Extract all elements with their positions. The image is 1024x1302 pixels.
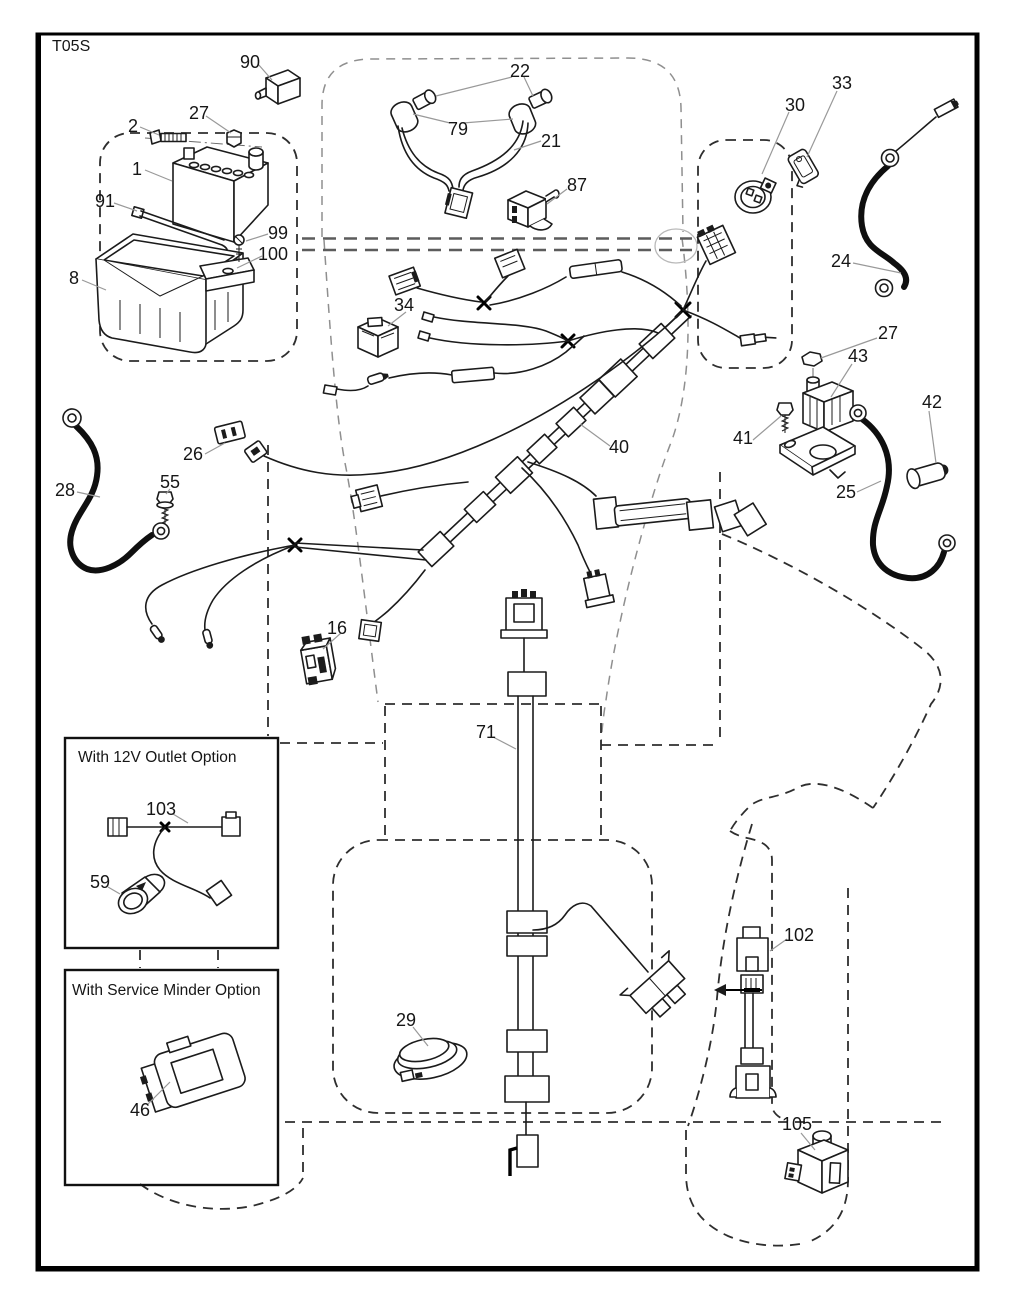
harness-connector-blocks bbox=[418, 323, 675, 566]
part-label-25: 25 bbox=[836, 482, 856, 502]
service-minder-inset: With Service Minder Option bbox=[65, 970, 278, 1185]
solenoid-43 bbox=[780, 352, 855, 478]
power-outlet-59 bbox=[114, 870, 168, 918]
steering-wheel-sketch bbox=[655, 229, 697, 263]
part-label-27-solenoid: 27 bbox=[878, 323, 898, 343]
part-label-99: 99 bbox=[268, 223, 288, 243]
part-label-34: 34 bbox=[394, 295, 414, 315]
small-plug-b bbox=[580, 567, 615, 607]
part-label-2: 2 bbox=[128, 116, 138, 136]
harness-102 bbox=[714, 927, 776, 1098]
part-label-16: 16 bbox=[327, 618, 347, 638]
part-label-24: 24 bbox=[831, 251, 851, 271]
ground-cable-28 bbox=[59, 405, 169, 570]
part-label-87: 87 bbox=[567, 175, 587, 195]
part-label-1: 1 bbox=[132, 159, 142, 179]
part-label-79: 79 bbox=[448, 119, 468, 139]
part-label-42: 42 bbox=[922, 392, 942, 412]
part-label-43: 43 bbox=[848, 346, 868, 366]
ignition-connector bbox=[695, 221, 735, 265]
part-label-30: 30 bbox=[785, 95, 805, 115]
part-label-103: 103 bbox=[146, 799, 176, 819]
part-label-28: 28 bbox=[55, 480, 75, 500]
inline-fuse-holder bbox=[569, 259, 622, 278]
part-label-29: 29 bbox=[396, 1010, 416, 1030]
chassis-outline bbox=[140, 445, 944, 1246]
battery bbox=[145, 138, 268, 242]
terminal-boot-42 bbox=[905, 459, 951, 490]
fuel-tank-outline bbox=[333, 840, 652, 1113]
fuel-cap-29 bbox=[390, 1031, 471, 1085]
switch-16 bbox=[298, 632, 337, 686]
battery-nut bbox=[227, 130, 241, 147]
twin-terminal-wires bbox=[418, 312, 658, 345]
part-label-105: 105 bbox=[782, 1114, 812, 1134]
parts-diagram-page: T05S bbox=[0, 0, 1024, 1302]
part-label-71: 71 bbox=[476, 722, 496, 742]
part-label-22: 22 bbox=[510, 61, 530, 81]
branch-connector-a bbox=[389, 267, 421, 295]
part-label-21: 21 bbox=[541, 131, 561, 151]
fuse-link-branch bbox=[528, 462, 766, 536]
part-label-41: 41 bbox=[733, 428, 753, 448]
harness-tail-plug bbox=[359, 620, 381, 642]
outlet-inset-title: With 12V Outlet Option bbox=[78, 749, 237, 766]
service-inset-title: With Service Minder Option bbox=[72, 982, 261, 999]
part-label-55: 55 bbox=[160, 472, 180, 492]
small-plug-a bbox=[350, 485, 382, 513]
diagram-code: T05S bbox=[52, 38, 90, 55]
screw-55 bbox=[157, 492, 173, 524]
ignition-switch bbox=[735, 178, 776, 213]
part-label-102: 102 bbox=[784, 925, 814, 945]
part-label-91: 91 bbox=[95, 191, 115, 211]
part-label-40: 40 bbox=[609, 437, 629, 457]
part-label-8: 8 bbox=[69, 268, 79, 288]
clip-connector bbox=[620, 951, 698, 1027]
hour-meter-105 bbox=[785, 1131, 848, 1193]
bullet-terminal-wires bbox=[146, 543, 426, 649]
part-label-59: 59 bbox=[90, 872, 110, 892]
part-label-33: 33 bbox=[832, 73, 852, 93]
part-label-27-battery: 27 bbox=[189, 103, 209, 123]
ground-cable-24 bbox=[861, 98, 960, 296]
ignition-key bbox=[783, 148, 821, 189]
spade-terminals bbox=[740, 331, 776, 346]
branch-connector-b bbox=[495, 249, 525, 277]
connector-87 bbox=[508, 190, 559, 230]
harness-cable-71 bbox=[501, 589, 698, 1176]
battery-box bbox=[96, 234, 243, 353]
dash-panel-lines bbox=[302, 239, 692, 251]
headlight-bulbs bbox=[412, 88, 554, 111]
part-label-26: 26 bbox=[183, 444, 203, 464]
outlet-option-inset: With 12V Outlet Option bbox=[65, 738, 278, 948]
part-label-90: 90 bbox=[240, 52, 260, 72]
battery-cable-25 bbox=[850, 405, 955, 578]
part-label-46: 46 bbox=[130, 1100, 150, 1120]
part-label-100: 100 bbox=[258, 244, 288, 264]
connector-90 bbox=[256, 70, 301, 104]
wiring-diagram-canvas: T05S bbox=[0, 0, 1024, 1302]
